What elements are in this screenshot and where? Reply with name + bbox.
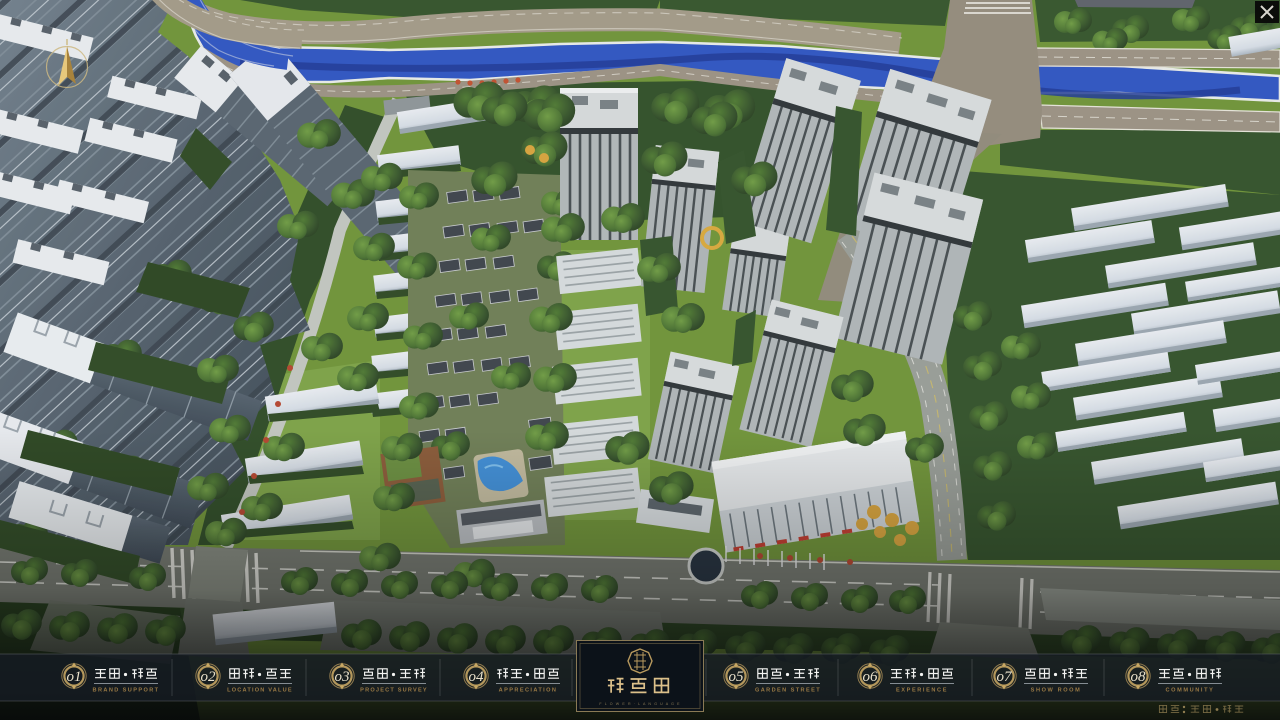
svg-text:o8: o8 bbox=[1131, 669, 1147, 685]
svg-text:o3: o3 bbox=[335, 669, 350, 685]
svg-text:APPRECIATION: APPRECIATION bbox=[499, 688, 558, 694]
svg-text:o5: o5 bbox=[729, 669, 745, 685]
svg-text:LOCATION VALUE: LOCATION VALUE bbox=[227, 688, 293, 694]
svg-text:o4: o4 bbox=[469, 669, 485, 685]
svg-text:GARDEN STREET: GARDEN STREET bbox=[755, 688, 821, 694]
svg-text:PROJECT SURVEY: PROJECT SURVEY bbox=[360, 688, 428, 694]
svg-text:SHOW ROOM: SHOW ROOM bbox=[1031, 688, 1082, 694]
svg-text:COMMUNITY: COMMUNITY bbox=[1166, 688, 1215, 694]
svg-text:o6: o6 bbox=[863, 669, 879, 685]
svg-text:o2: o2 bbox=[201, 669, 217, 685]
svg-text:BRAND SUPPORT: BRAND SUPPORT bbox=[93, 688, 160, 694]
svg-text:EXPERIENCE: EXPERIENCE bbox=[896, 688, 948, 694]
svg-text:F L O W E R · L A N G U A G E: F L O W E R · L A N G U A G E bbox=[599, 702, 680, 706]
svg-text:o7: o7 bbox=[997, 669, 1014, 685]
svg-text:o1: o1 bbox=[67, 669, 82, 685]
